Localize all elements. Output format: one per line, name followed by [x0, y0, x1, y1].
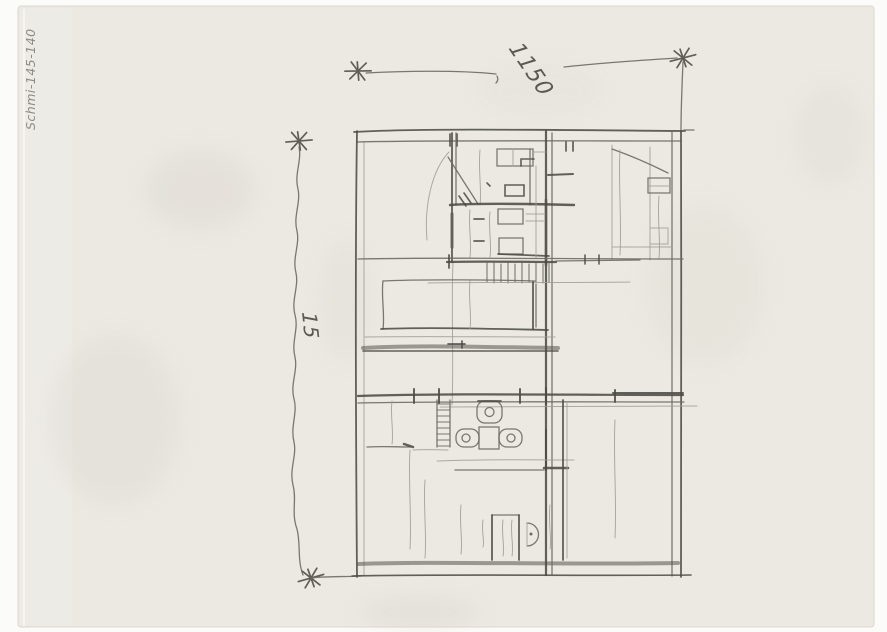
paper-sheet — [18, 6, 874, 628]
dimension-left-label: 15 — [297, 312, 324, 339]
archive-code-label: Schmi-145-140 — [23, 28, 38, 130]
scanned-sketch-page: Schmi-145-140 1150 15 — [0, 0, 887, 632]
floor-plan-sketch: Schmi-145-140 1150 15 — [0, 0, 887, 632]
